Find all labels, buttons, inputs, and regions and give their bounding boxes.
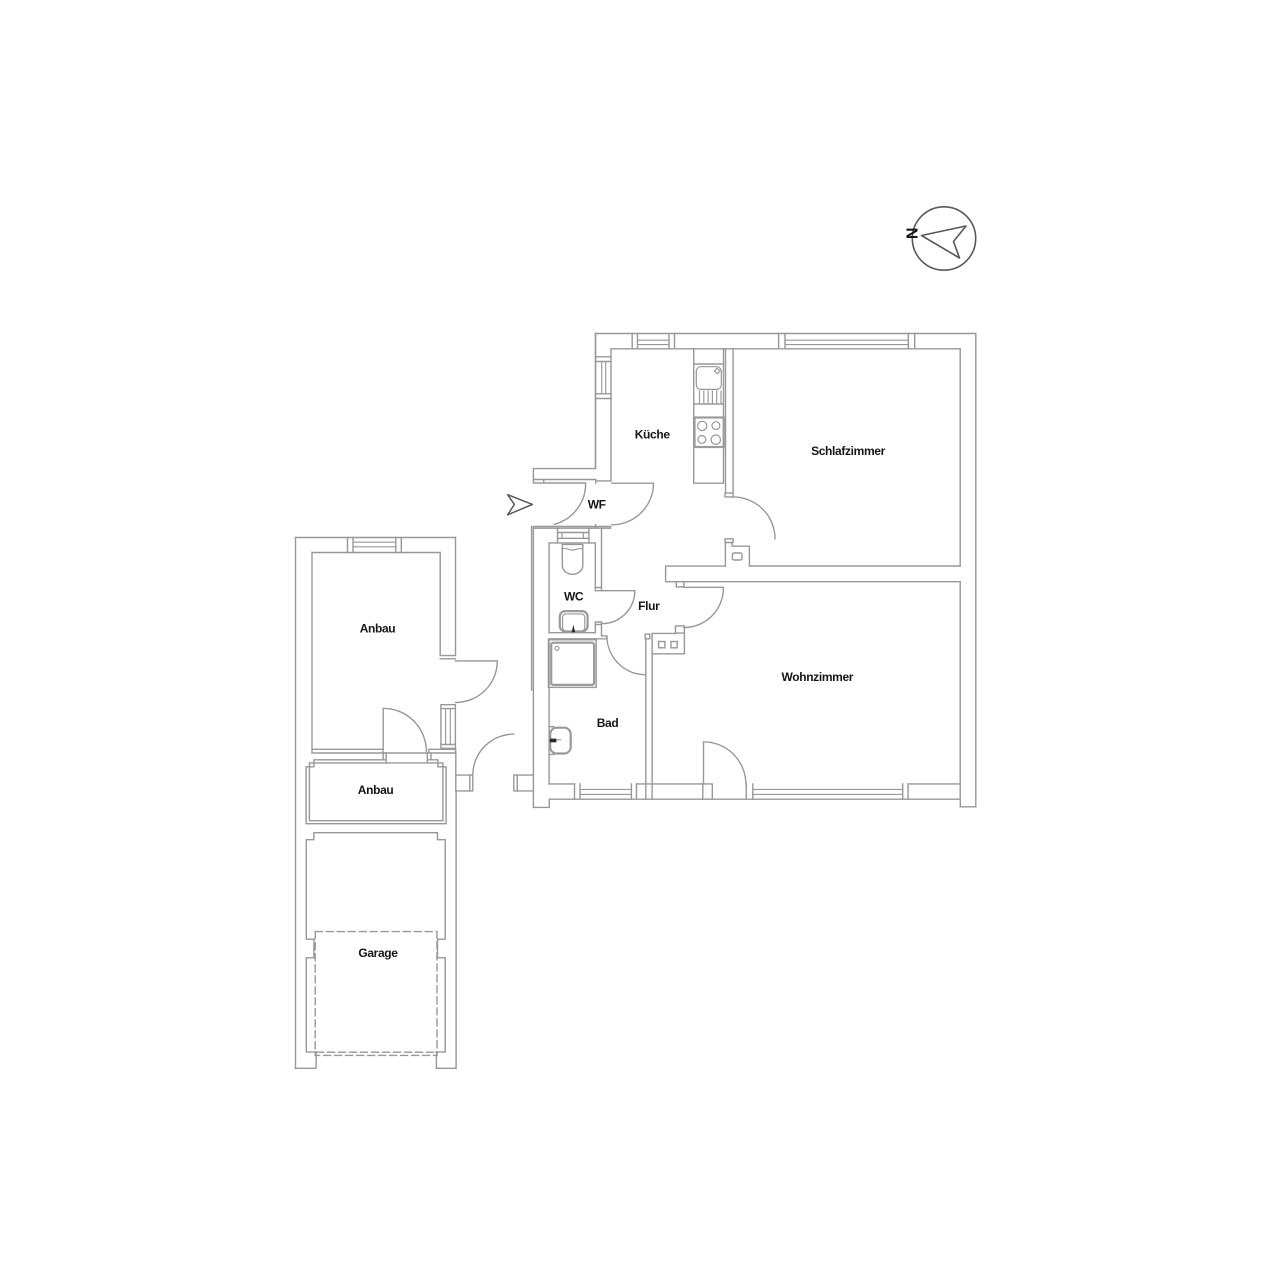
svg-text:Küche: Küche: [635, 427, 671, 441]
svg-text:Flur: Flur: [638, 599, 660, 613]
svg-text:Garage: Garage: [358, 946, 398, 960]
svg-text:Anbau: Anbau: [360, 622, 396, 636]
svg-text:N: N: [905, 228, 922, 239]
svg-text:WF: WF: [588, 497, 606, 511]
svg-text:WC: WC: [564, 589, 584, 603]
svg-text:Schlafzimmer: Schlafzimmer: [811, 444, 886, 458]
svg-text:Anbau: Anbau: [358, 783, 394, 797]
svg-text:Wohnzimmer: Wohnzimmer: [781, 670, 853, 684]
svg-text:Bad: Bad: [597, 716, 619, 730]
